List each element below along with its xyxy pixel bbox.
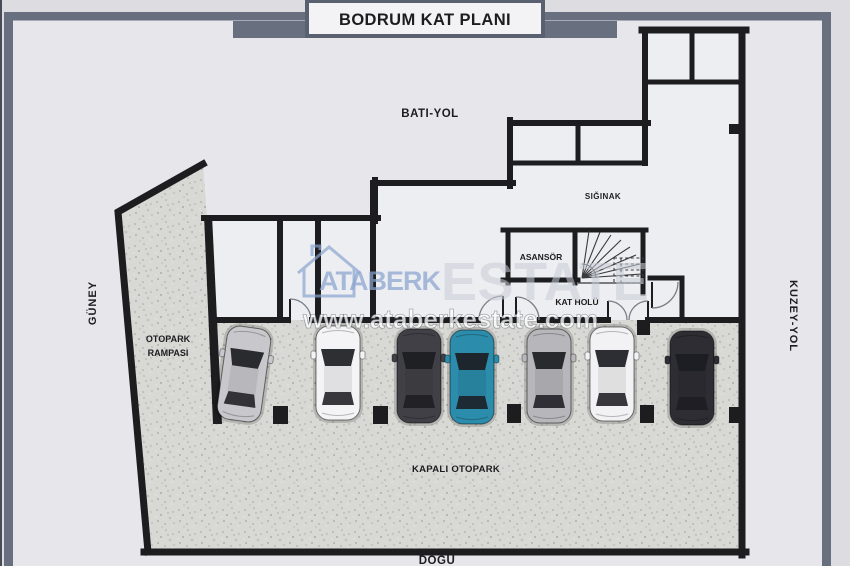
room-label-ramp-line1: OTOPARK	[146, 334, 191, 344]
car-2	[311, 323, 365, 423]
road-label-east: DOĞU	[419, 554, 456, 566]
watermark-url: www.ataberkestate.com	[302, 304, 598, 334]
car-3	[392, 326, 446, 426]
road-label-west: BATI-YOL	[401, 108, 458, 120]
title-banner-right	[541, 21, 617, 38]
car-4	[445, 327, 499, 427]
pillar	[373, 406, 388, 424]
watermark-brand: ATABERK	[319, 266, 441, 296]
watermark-brand-suffix: ESTATE	[441, 252, 649, 312]
room-label-ramp-line2: RAMPASI	[148, 348, 189, 358]
car-7	[665, 328, 719, 428]
wall-stub-upper	[729, 124, 742, 134]
floor-plan-image: BATI-YOL SIĞINAK ASANSÖR KAT HOLÜ OTOPAR…	[0, 0, 850, 566]
title-box: BODRUM KAT PLANI	[307, 1, 543, 36]
car-5	[522, 326, 576, 426]
pillar	[640, 405, 654, 423]
car-6	[585, 324, 639, 424]
title-banner-left	[233, 21, 309, 38]
pillar	[273, 406, 288, 424]
room-label-indoor-parking: KAPALI OTOPARK	[412, 464, 500, 475]
road-label-south: GÜNEY	[86, 281, 99, 325]
floor-plan-svg: BATI-YOL SIĞINAK ASANSÖR KAT HOLÜ OTOPAR…	[0, 0, 850, 566]
frame-left	[4, 12, 13, 566]
wall-stub-lower	[729, 407, 742, 423]
road-label-north: KUZEY-YOL	[787, 280, 799, 352]
wall-stub-hall	[637, 320, 650, 335]
frame-right	[822, 12, 831, 566]
pillar	[507, 404, 521, 423]
left-edge-line	[0, 0, 2, 566]
room-label-shelter: SIĞINAK	[585, 192, 621, 201]
page-title: BODRUM KAT PLANI	[339, 11, 511, 29]
